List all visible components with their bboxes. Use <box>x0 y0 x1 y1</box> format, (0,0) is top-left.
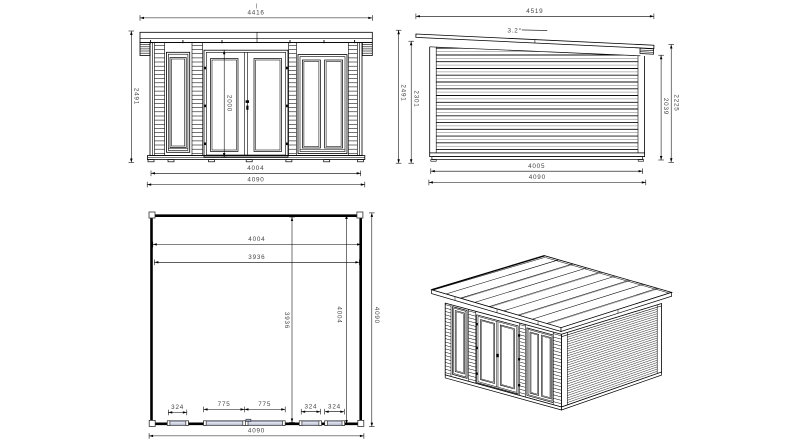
svg-text:2491: 2491 <box>132 88 139 105</box>
svg-text:4004: 4004 <box>335 306 342 323</box>
svg-text:3936: 3936 <box>283 312 290 329</box>
svg-text:4005: 4005 <box>528 163 545 170</box>
svg-text:3936: 3936 <box>248 254 265 261</box>
svg-text:775: 775 <box>218 401 231 408</box>
svg-text:2225: 2225 <box>672 94 679 111</box>
svg-text:2491: 2491 <box>400 84 407 101</box>
svg-text:4416: 4416 <box>247 10 264 17</box>
svg-text:3.2°: 3.2° <box>507 26 521 34</box>
svg-text:2039: 2039 <box>662 98 669 115</box>
svg-text:4004: 4004 <box>247 165 264 172</box>
svg-text:324: 324 <box>328 404 341 411</box>
svg-text:4090: 4090 <box>248 428 265 435</box>
svg-text:4090: 4090 <box>247 176 264 183</box>
svg-text:4519: 4519 <box>526 8 543 15</box>
svg-text:2000: 2000 <box>225 95 232 112</box>
svg-text:775: 775 <box>258 401 271 408</box>
svg-text:324: 324 <box>304 404 317 411</box>
svg-text:4090: 4090 <box>373 307 380 324</box>
svg-text:4004: 4004 <box>248 236 265 243</box>
svg-text:2301: 2301 <box>412 90 419 107</box>
svg-text:324: 324 <box>171 404 184 411</box>
svg-text:4090: 4090 <box>529 174 546 181</box>
